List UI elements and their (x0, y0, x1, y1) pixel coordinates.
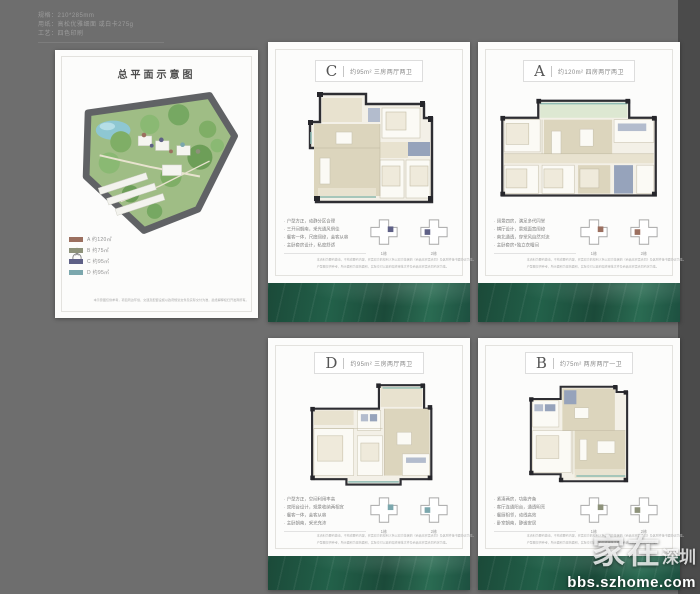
keyplan-group: 1栋 2栋 (366, 496, 452, 535)
card-content-row: · 阔景四房，满足多代同堂 · 横厅设计，景观面宽阔绰 · 南北通透，穿堂风自然… (494, 218, 666, 257)
floorplan-drawing-b (478, 378, 680, 490)
unit-spec: 约75m² 两房两厅一卫 (560, 359, 622, 368)
feature-item: · 主卧套房+独立衣帽间 (494, 242, 566, 249)
print-specs: 规格：210*285mm 用纸：高松优雅细面 或白卡275g 工艺：四色印刷 (38, 12, 164, 43)
site-disclaimer: 本示意图仅供参考，项目周边环境、交通及配套设施以政府规划文件及实际交付为准，最终… (94, 298, 220, 302)
feature-list: · 紧凑两房，功能齐备 · 客厅连通阳台，通透明亮 · 餐厨相邻，动线高效 · … (494, 496, 576, 535)
forum-screenshot: { "colors": { "background": "#6e6e6e", "… (0, 0, 700, 594)
card-disclaimer: 本资料为要约邀请，不构成要约内容，买卖双方的权利义务以双方签署的《商品房买卖合同… (492, 534, 666, 548)
legend-row-b: B 约75㎡ (69, 247, 112, 254)
feature-item: · 餐厨相邻，动线高效 (494, 512, 566, 519)
keyplan-icon (366, 496, 402, 526)
card-disclaimer: 本资料为要约邀请，不构成要约内容，买卖双方的权利义务以双方签署的《商品房买卖合同… (282, 258, 456, 272)
disclaimer-line: 本资料为要约邀请，不构成要约内容，买卖双方的权利义务以双方签署的《商品房买卖合同… (317, 258, 421, 262)
header-divider (343, 66, 344, 77)
card-header: B 约75m² 两房两厅一卫 (478, 352, 680, 374)
header-divider (551, 66, 552, 77)
disclaimer-line: 户型图仅供参考，所示面积为建筑面积，实际交付以政府最终审批文件及商品房买卖合同约… (317, 265, 421, 269)
feature-item: · 紧凑两房，功能齐备 (494, 496, 566, 503)
disclaimer-line: 户型图仅供参考，所示面积为建筑面积，实际交付以政府最终审批文件及商品房买卖合同约… (317, 541, 421, 545)
feature-item: · 户型方正，动静分区合理 (284, 218, 356, 225)
floorplan-card-c: C 约95m² 三房两厅两卫 (268, 42, 470, 322)
disclaimer-line: 本资料为要约邀请，不构成要约内容，买卖双方的权利义务以双方签署的《商品房买卖合同… (527, 534, 631, 538)
card-content-row: · 户型方正，空间利用率高 · 双阳台设计，观景收纳两相宜 · 餐客一体，会客从… (284, 496, 456, 535)
legend-swatch-c (69, 259, 83, 264)
disclaimer-line: 户型图仅供参考，所示面积为建筑面积，实际交付以政府最终审批文件及商品房买卖合同约… (527, 541, 631, 545)
legend-label-c: C 约95㎡ (87, 258, 109, 265)
unit-letter: B (536, 356, 547, 370)
master-plan-title: 总平面示意图 (55, 66, 258, 81)
header-divider (553, 358, 554, 369)
card-header: A 约120m² 四房两厅两卫 (478, 60, 680, 82)
feature-item: · 主卧套房设计，私密舒适 (284, 242, 356, 249)
card-disclaimer: 本资料为要约邀请，不构成要约内容，买卖双方的权利义务以双方签署的《商品房买卖合同… (282, 534, 456, 548)
keyplan-1: 1栋 (576, 218, 612, 257)
floorplan-card-d: D 约95m² 三房两厅两卫 (268, 338, 470, 590)
keyplan-icon (576, 218, 612, 248)
disclaimer-line: 户型图仅供参考，所示面积为建筑面积，实际交付以政府最终审批文件及商品房买卖合同约… (527, 265, 631, 269)
keyplan-icon (576, 496, 612, 526)
unit-spec: 约95m² 三房两厅两卫 (350, 67, 412, 76)
feature-item: · 横厅设计，景观面宽阔绰 (494, 226, 566, 233)
master-plan-page: 总平面示意图 A 约120㎡ (55, 50, 258, 318)
keyplan-2: 2栋 (416, 218, 452, 257)
legend-label-d: D 约95㎡ (87, 269, 109, 276)
unit-spec: 约120m² 四房两厅两卫 (558, 67, 624, 76)
legend-row-a: A 约120㎡ (69, 236, 112, 243)
legend-label-b: B 约75㎡ (87, 247, 109, 254)
legend-row-c: C 约95㎡ (69, 258, 112, 265)
right-dark-strip (678, 0, 700, 594)
keyplan-icon (366, 218, 402, 248)
card-header-box: A 约120m² 四房两厅两卫 (523, 60, 635, 82)
keyplan-label: 1栋 (591, 251, 598, 257)
unit-letter: D (325, 356, 337, 370)
card-header-box: B 约75m² 两房两厅一卫 (525, 352, 633, 374)
keyplan-icon (626, 218, 662, 248)
floorplan-card-a: A 约120m² 四房两厅两卫 (478, 42, 680, 322)
legend-label-a: A 约120㎡ (87, 236, 112, 243)
feature-item: · 三开间朝南，采光通风俱佳 (284, 226, 356, 233)
keyplan-group: 1栋 2栋 (576, 496, 662, 535)
legend-swatch-d (69, 270, 83, 275)
feature-item: · 客厅连通阳台，通透明亮 (494, 504, 566, 511)
feature-list: · 户型方正，动静分区合理 · 三开间朝南，采光通风俱佳 · 餐客一体，尺度阔绰… (284, 218, 366, 257)
green-marble-band (268, 556, 470, 590)
feature-item: · 双阳台设计，观景收纳两相宜 (284, 504, 356, 511)
feature-divider (494, 253, 576, 254)
legend-swatch-b (69, 248, 83, 253)
print-spec-process: 工艺：四色印刷 (38, 30, 164, 39)
disclaimer-line: 本资料为要约邀请，不构成要约内容，买卖双方的权利义务以双方签署的《商品房买卖合同… (317, 534, 421, 538)
card-header: D 约95m² 三房两厅两卫 (268, 352, 470, 374)
floorplan-drawing-c (268, 88, 470, 212)
disclaimer-line: 本资料为要约邀请，不构成要约内容，买卖双方的权利义务以双方签署的《商品房买卖合同… (527, 258, 631, 262)
keyplan-icon (416, 496, 452, 526)
floorplan-card-b: B 约75m² 两房两厅一卫 · 紧凑两房，功 (478, 338, 680, 590)
card-header: C 约95m² 三房两厅两卫 (268, 60, 470, 82)
card-header-box: C 约95m² 三房两厅两卫 (315, 60, 424, 82)
feature-item: · 主卧朝南，采光充沛 (284, 520, 356, 527)
keyplan-2: 2栋 (626, 496, 662, 535)
legend-swatch-a (69, 237, 83, 242)
keyplan-label: 2栋 (431, 251, 438, 257)
keyplan-1: 1栋 (576, 496, 612, 535)
card-disclaimer: 本资料为要约邀请，不构成要约内容，买卖双方的权利义务以双方签署的《商品房买卖合同… (492, 258, 666, 272)
keyplan-icon (416, 218, 452, 248)
feature-item: · 卧室朝南，静谧安居 (494, 520, 566, 527)
feature-item: · 餐客一体，尺度阔绰，会客从容 (284, 234, 356, 241)
header-divider (343, 358, 344, 369)
floorplan-drawing-d (268, 378, 470, 490)
unit-spec: 约95m² 三房两厅两卫 (350, 359, 412, 368)
keyplan-label: 2栋 (641, 251, 648, 257)
print-specs-divider (38, 42, 164, 43)
card-content-row: · 户型方正，动静分区合理 · 三开间朝南，采光通风俱佳 · 餐客一体，尺度阔绰… (284, 218, 456, 257)
unit-letter: A (534, 64, 545, 78)
unit-legend: A 约120㎡ B 约75㎡ C 约95㎡ D 约95㎡ (69, 236, 112, 280)
unit-letter: C (326, 64, 337, 78)
feature-list: · 户型方正，空间利用率高 · 双阳台设计，观景收纳两相宜 · 餐客一体，会客从… (284, 496, 366, 535)
feature-list: · 阔景四房，满足多代同堂 · 横厅设计，景观面宽阔绰 · 南北通透，穿堂风自然… (494, 218, 576, 257)
keyplan-2: 2栋 (626, 218, 662, 257)
feature-item: · 南北通透，穿堂风自然对流 (494, 234, 566, 241)
keyplan-label: 1栋 (381, 251, 388, 257)
card-content-row: · 紧凑两房，功能齐备 · 客厅连通阳台，通透明亮 · 餐厨相邻，动线高效 · … (494, 496, 666, 535)
keyplan-1: 1栋 (366, 496, 402, 535)
green-marble-band (268, 283, 470, 322)
legend-row-d: D 约95㎡ (69, 269, 112, 276)
print-spec-paper: 用纸：高松优雅细面 或白卡275g (38, 21, 164, 30)
feature-item: · 阔景四房，满足多代同堂 (494, 218, 566, 225)
green-marble-band (478, 556, 680, 590)
keyplan-1: 1栋 (366, 218, 402, 257)
feature-divider (284, 253, 366, 254)
floorplan-drawing-a (478, 88, 680, 212)
feature-item: · 户型方正，空间利用率高 (284, 496, 356, 503)
feature-divider (494, 531, 576, 532)
feature-item: · 餐客一体，会客从容 (284, 512, 356, 519)
green-marble-band (478, 283, 680, 322)
card-header-box: D 约95m² 三房两厅两卫 (314, 352, 423, 374)
site-plan-illustration (63, 84, 251, 242)
print-spec-size: 规格：210*285mm (38, 12, 164, 21)
keyplan-group: 1栋 2栋 (366, 218, 452, 257)
keyplan-2: 2栋 (416, 496, 452, 535)
keyplan-group: 1栋 2栋 (576, 218, 662, 257)
keyplan-icon (626, 496, 662, 526)
feature-divider (284, 531, 366, 532)
